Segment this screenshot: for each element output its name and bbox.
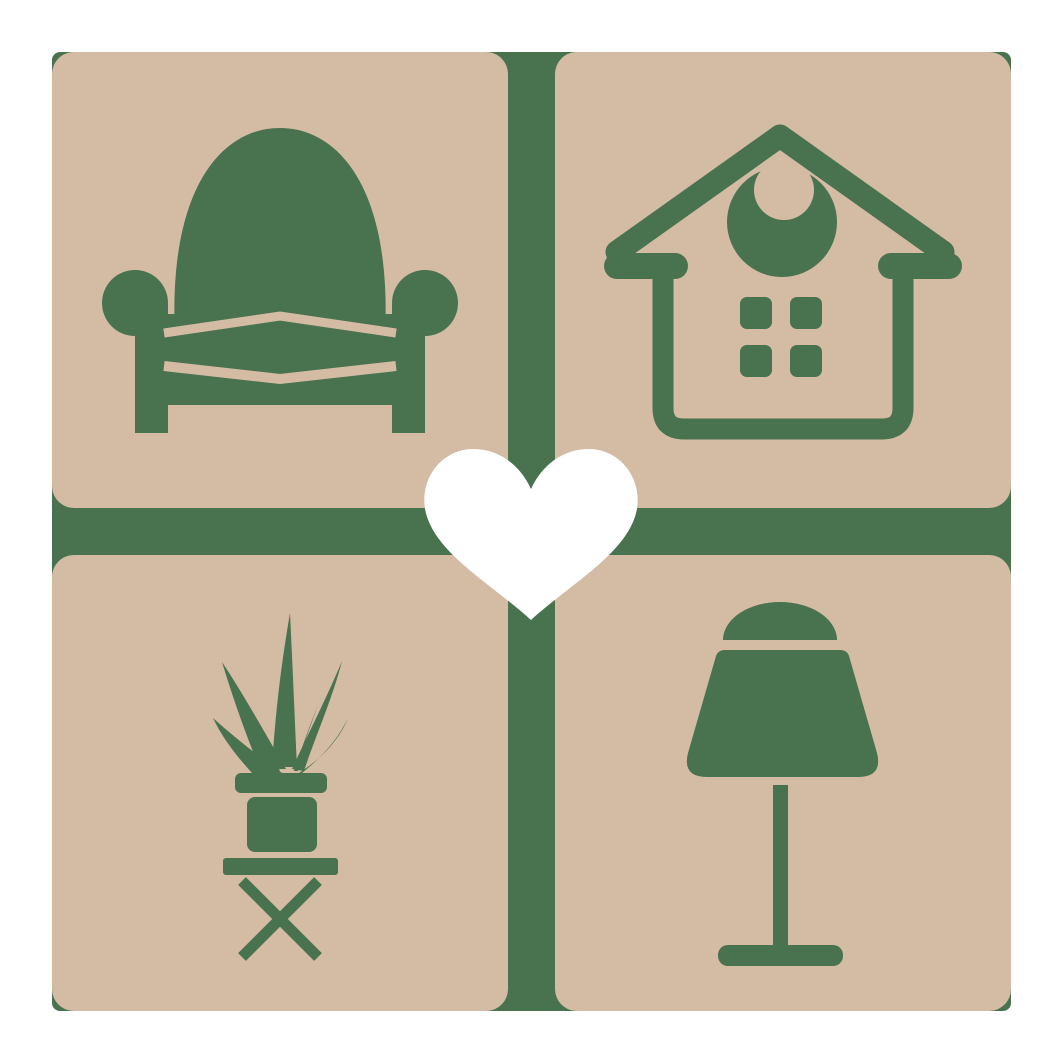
armchair-right-leg <box>392 303 425 433</box>
heart-icon <box>423 447 639 623</box>
house-lamp-ball-cutout <box>754 160 814 220</box>
house-walls <box>663 262 903 429</box>
table-lamp-icon <box>555 555 1011 1011</box>
tile-armchair <box>52 52 508 508</box>
heart-shape <box>424 449 637 620</box>
tile-lamp <box>555 555 1011 1011</box>
plant-pot-body <box>247 797 317 852</box>
house-window-pane <box>740 345 772 377</box>
lamp-cap <box>723 602 837 640</box>
stool-top <box>223 858 338 875</box>
tile-house <box>555 52 1011 508</box>
armchair-icon <box>52 52 508 508</box>
lamp-stem <box>773 785 788 950</box>
house-window-pane <box>790 297 822 329</box>
house-icon <box>555 52 1011 508</box>
plant-pot-rim <box>235 773 327 793</box>
lamp-base <box>718 945 843 966</box>
house-window-pane <box>740 297 772 329</box>
plant-leaf-right-long <box>292 661 342 771</box>
potted-plant-icon <box>52 555 508 1011</box>
house-window-pane <box>790 345 822 377</box>
tile-plant <box>52 555 508 1011</box>
armchair-left-leg <box>135 303 168 433</box>
logo-canvas <box>0 0 1063 1063</box>
plant-leaf-center <box>272 613 297 767</box>
lamp-shade <box>687 650 878 777</box>
